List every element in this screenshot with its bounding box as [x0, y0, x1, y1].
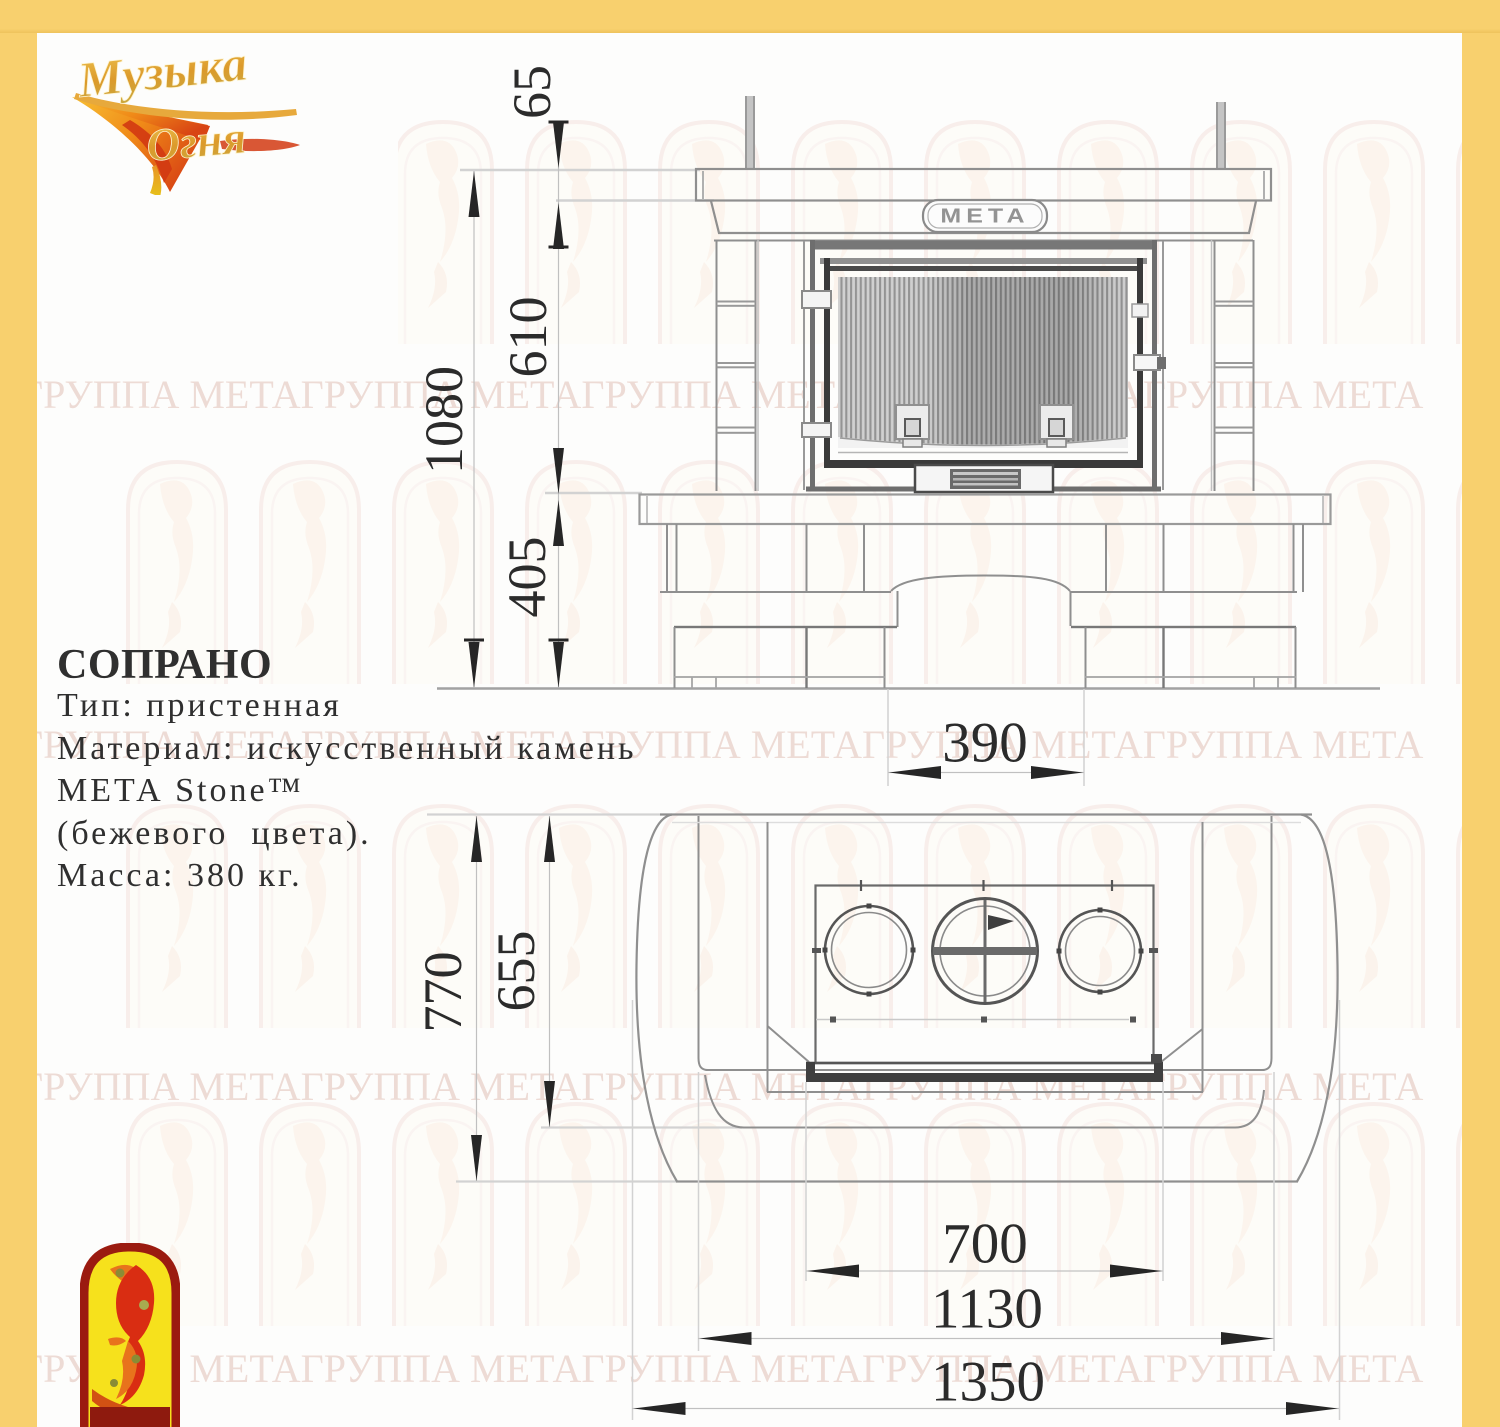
svg-text:405: 405: [497, 537, 557, 618]
svg-text:65: 65: [502, 65, 562, 119]
svg-text:1130: 1130: [931, 1278, 1043, 1341]
svg-text:610: 610: [498, 297, 558, 378]
svg-text:1350: 1350: [931, 1351, 1045, 1414]
svg-text:390: 390: [942, 712, 1028, 775]
svg-text:770: 770: [413, 952, 473, 1033]
svg-text:МЕТА: МЕТА: [940, 205, 1029, 227]
svg-text:1080: 1080: [414, 366, 474, 474]
svg-text:700: 700: [942, 1213, 1028, 1276]
svg-text:655: 655: [486, 931, 546, 1012]
svg-text:Огня: Огня: [144, 111, 248, 170]
svg-text:Музыка: Музыка: [74, 45, 249, 108]
